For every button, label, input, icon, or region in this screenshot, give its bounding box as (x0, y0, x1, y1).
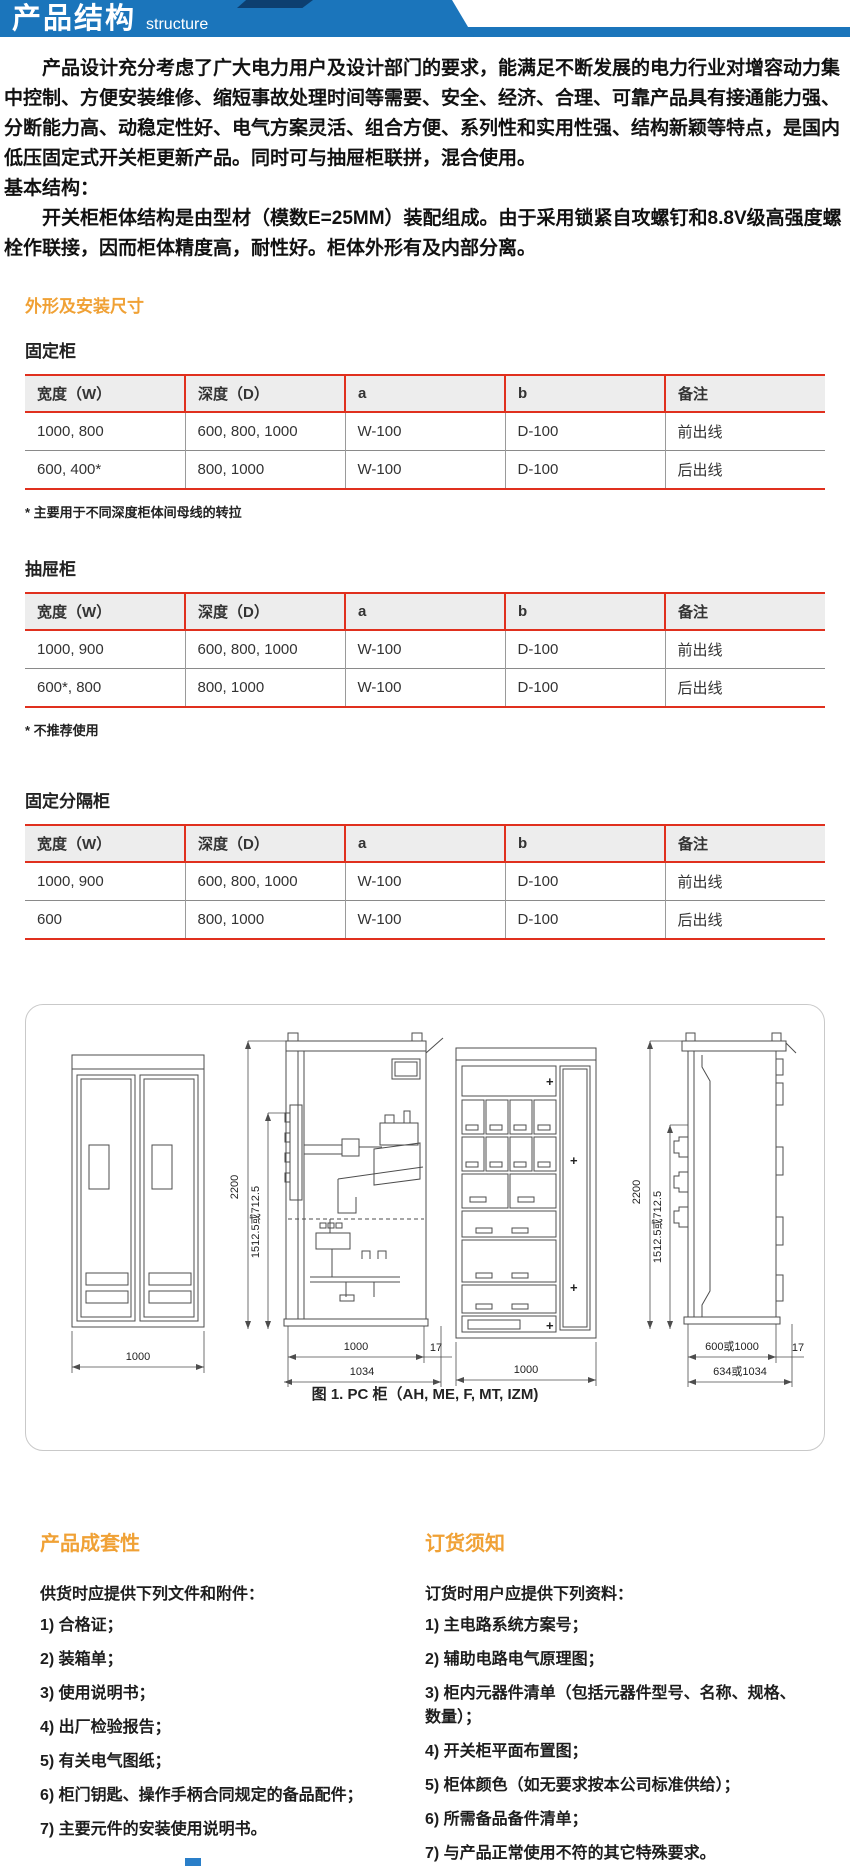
basic-structure-label: 基本结构： (4, 174, 848, 204)
page-banner: 产品结构 structure (0, 0, 850, 42)
list-item: 5) 有关电气图纸； (40, 1750, 425, 1774)
cell: 600 (25, 901, 185, 940)
table-row: 1000, 900 600, 800, 1000 W-100 D-100 前出线 (25, 862, 825, 901)
cell: 800, 1000 (185, 451, 345, 490)
intro-paragraph-2: 开关柜柜体结构是由型材（模数E=25MM）装配组成。由于采用锁紧自攻螺钉和8.8… (4, 204, 848, 264)
dim-label: 1512.5或712.5 (249, 1186, 262, 1258)
cell: 600, 800, 1000 (185, 412, 345, 451)
cell: 前出线 (665, 862, 825, 901)
col-header: 宽度（W） (25, 593, 185, 630)
list-item: 1) 主电路系统方案号； (425, 1614, 810, 1638)
list-item: 4) 出厂检验报告； (40, 1716, 425, 1740)
banner-main: 产品结构 structure (0, 0, 474, 37)
table-header-row: 宽度（W） 深度（D） a b 备注 (25, 825, 825, 862)
list-item: 3) 柜内元器件清单（包括元器件型号、名称、规格、数量）； (425, 1682, 810, 1730)
dim-label: 1034 (350, 1366, 374, 1378)
dimensions-section: 外形及安装尺寸 固定柜 宽度（W） 深度（D） a b 备注 1000, 800… (0, 292, 850, 940)
intro-paragraph-1: 产品设计充分考虑了广大电力用户及设计部门的要求，能满足不断发展的电力行业对增容动… (4, 54, 848, 174)
list-item: 7) 与产品正常使用不符的其它特殊要求。 (425, 1842, 810, 1866)
list-item: 4) 开关柜平面布置图； (425, 1740, 810, 1764)
table-header-row: 宽度（W） 深度（D） a b 备注 (25, 375, 825, 412)
dim-label: 1000 (126, 1351, 150, 1363)
ordering-notes-column: 订货须知 订货时用户应提供下列资料： 1) 主电路系统方案号； 2) 辅助电路电… (425, 1527, 810, 1866)
fixed-partition-block: 固定分隔柜 宽度（W） 深度（D） a b 备注 1000, 900 600, … (25, 787, 825, 940)
table-row: 600*, 800 800, 1000 W-100 D-100 后出线 (25, 669, 825, 708)
cell: W-100 (345, 412, 505, 451)
cell: 后出线 (665, 901, 825, 940)
cell: 600, 800, 1000 (185, 630, 345, 669)
col-header: 备注 (665, 375, 825, 412)
cell: 前出线 (665, 630, 825, 669)
table-title-partition: 固定分隔柜 (25, 787, 825, 812)
cell: D-100 (505, 630, 665, 669)
cell: W-100 (345, 901, 505, 940)
ordering-heading: 订货须知 (425, 1527, 810, 1556)
fixed-partition-table: 宽度（W） 深度（D） a b 备注 1000, 900 600, 800, 1… (25, 824, 825, 940)
cell: D-100 (505, 901, 665, 940)
cell: 800, 1000 (185, 669, 345, 708)
table-row: 1000, 900 600, 800, 1000 W-100 D-100 前出线 (25, 630, 825, 669)
col-header: 宽度（W） (25, 375, 185, 412)
table-footnote: * 不推荐使用 (25, 720, 825, 739)
col-header: a (345, 593, 505, 630)
dim-label: 600或1000 (705, 1340, 759, 1353)
figure-box: 1000 (25, 1004, 825, 1451)
cell: 后出线 (665, 669, 825, 708)
table-row: 600 800, 1000 W-100 D-100 后出线 (25, 901, 825, 940)
cell: 1000, 800 (25, 412, 185, 451)
cell: 后出线 (665, 451, 825, 490)
dim-label: 2200 (229, 1175, 241, 1199)
table-title-drawer: 抽屉柜 (25, 555, 825, 580)
cell: D-100 (505, 862, 665, 901)
col-header: 备注 (665, 825, 825, 862)
bottom-section: 产品成套性 供货时应提供下列文件和附件： 1) 合格证； 2) 装箱单； 3) … (0, 1527, 850, 1866)
col-header: b (505, 825, 665, 862)
col-header: a (345, 375, 505, 412)
fixed-cabinet-front-drawing: 1000 (64, 1047, 224, 1392)
table-row: 600, 400* 800, 1000 W-100 D-100 后出线 (25, 451, 825, 490)
col-header: b (505, 593, 665, 630)
completeness-intro: 供货时应提供下列文件和附件： (40, 1580, 425, 1604)
col-header: 深度（D） (185, 375, 345, 412)
plus-mark: + (546, 1318, 554, 1333)
table-title-fixed: 固定柜 (25, 337, 825, 362)
dim-label: 1512.5或712.5 (651, 1191, 664, 1263)
cell: 800, 1000 (185, 901, 345, 940)
dim-label: 2200 (631, 1180, 643, 1204)
cabinet-side-view-drawing: 2200 1512.5或712.5 600或1000 17 634或1034 (624, 1027, 819, 1412)
cell: W-100 (345, 862, 505, 901)
cell: 1000, 900 (25, 630, 185, 669)
intro-section: 产品设计充分考虑了广大电力用户及设计部门的要求，能满足不断发展的电力行业对增容动… (0, 42, 850, 264)
list-item: 6) 柜门钥匙、操作手柄合同规定的备品配件； (40, 1784, 425, 1808)
cell: D-100 (505, 669, 665, 708)
drawer-cabinet-table: 宽度（W） 深度（D） a b 备注 1000, 900 600, 800, 1… (25, 592, 825, 708)
table-footnote: * 主要用于不同深度柜体间母线的转拉 (25, 502, 825, 521)
cell: W-100 (345, 451, 505, 490)
col-header: a (345, 825, 505, 862)
list-item: 2) 装箱单； (40, 1648, 425, 1672)
col-header: 深度（D） (185, 593, 345, 630)
plus-mark: + (570, 1153, 578, 1168)
cabinet-side-section-drawing: 2200 1512.5或712.5 1000 17 1034 (224, 1027, 454, 1412)
dim-label: 634或1034 (713, 1365, 767, 1378)
cell: D-100 (505, 451, 665, 490)
cell: 600, 400* (25, 451, 185, 490)
page-subtitle: structure (146, 16, 208, 34)
dim-label: 1000 (514, 1364, 538, 1376)
completeness-heading: 产品成套性 (40, 1527, 425, 1556)
cell: 前出线 (665, 412, 825, 451)
product-completeness-column: 产品成套性 供货时应提供下列文件和附件： 1) 合格证； 2) 装箱单； 3) … (40, 1527, 425, 1866)
page-title: 产品结构 (12, 5, 136, 34)
list-item: 6) 所需备品备件清单； (425, 1808, 810, 1832)
table-header-row: 宽度（W） 深度（D） a b 备注 (25, 593, 825, 630)
col-header: b (505, 375, 665, 412)
cell: 600*, 800 (25, 669, 185, 708)
drawer-cabinet-front-drawing: + + + + 1000 (448, 1040, 613, 1415)
cell: 1000, 900 (25, 862, 185, 901)
dim-label: 1000 (344, 1341, 368, 1353)
drawer-cabinet-block: 抽屉柜 宽度（W） 深度（D） a b 备注 1000, 900 600, 80… (25, 555, 825, 739)
list-item: 5) 柜体颜色（如无要求按本公司标准供给）； (425, 1774, 810, 1798)
col-header: 深度（D） (185, 825, 345, 862)
cell: D-100 (505, 412, 665, 451)
dimensions-heading: 外形及安装尺寸 (25, 292, 825, 317)
list-item: 7) 主要元件的安装使用说明书。 (40, 1818, 425, 1842)
plus-mark: + (546, 1074, 554, 1089)
dim-label: 17 (792, 1342, 804, 1354)
footer-mark (185, 1858, 201, 1866)
list-item: 2) 辅助电路电气原理图； (425, 1648, 810, 1672)
list-item: 3) 使用说明书； (40, 1682, 425, 1706)
cell: 600, 800, 1000 (185, 862, 345, 901)
dim-label: 17 (430, 1342, 442, 1354)
banner-accent-shape (237, 0, 313, 8)
cell: W-100 (345, 669, 505, 708)
col-header: 备注 (665, 593, 825, 630)
table-row: 1000, 800 600, 800, 1000 W-100 D-100 前出线 (25, 412, 825, 451)
list-item: 1) 合格证； (40, 1614, 425, 1638)
cell: W-100 (345, 630, 505, 669)
ordering-intro: 订货时用户应提供下列资料： (425, 1580, 810, 1604)
plus-mark: + (570, 1280, 578, 1295)
fixed-cabinet-block: 固定柜 宽度（W） 深度（D） a b 备注 1000, 800 600, 80… (25, 337, 825, 521)
figure-caption: 图 1. PC 柜（AH, ME, F, MT, IZM) (26, 1383, 824, 1404)
fixed-cabinet-table: 宽度（W） 深度（D） a b 备注 1000, 800 600, 800, 1… (25, 374, 825, 490)
col-header: 宽度（W） (25, 825, 185, 862)
